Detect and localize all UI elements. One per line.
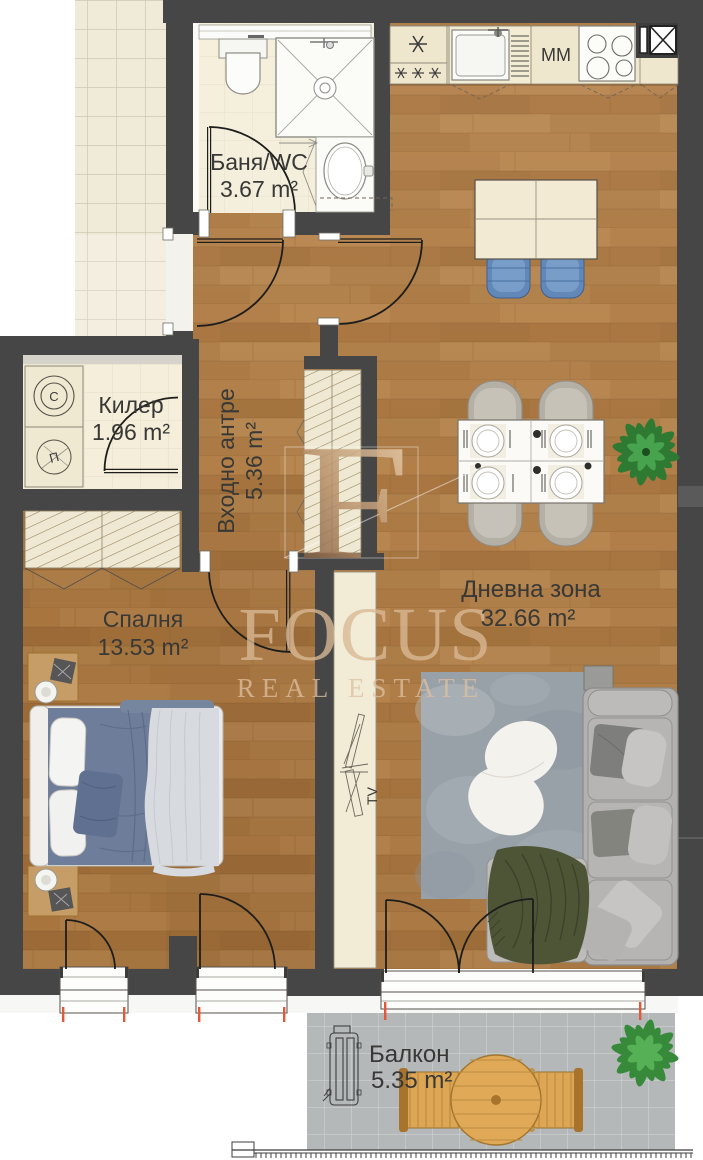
- svg-text:32.66 m²: 32.66 m²: [481, 605, 576, 632]
- svg-text:Спалня: Спалня: [103, 606, 183, 632]
- svg-text:3.67 m²: 3.67 m²: [220, 176, 298, 202]
- svg-text:F: F: [297, 411, 410, 595]
- svg-text:13.53 m²: 13.53 m²: [98, 634, 189, 660]
- svg-text:C: C: [49, 389, 58, 404]
- svg-text:Балкон: Балкон: [369, 1041, 449, 1068]
- svg-text:5.35 m²: 5.35 m²: [371, 1067, 452, 1094]
- svg-text:MM: MM: [541, 45, 571, 65]
- svg-text:Дневна зона: Дневна зона: [461, 576, 601, 603]
- svg-text:5.36 m²: 5.36 m²: [241, 422, 267, 500]
- svg-text:Баня/WC: Баня/WC: [210, 149, 308, 175]
- svg-text:FOCUS: FOCUS: [239, 593, 494, 677]
- svg-text:TV: TV: [364, 786, 380, 805]
- svg-text:Килер: Килер: [98, 392, 163, 418]
- svg-text:REAL ESTATE: REAL ESTATE: [237, 673, 486, 703]
- svg-text:1.96 m²: 1.96 m²: [92, 419, 170, 445]
- svg-text:Входно антре: Входно антре: [213, 388, 239, 534]
